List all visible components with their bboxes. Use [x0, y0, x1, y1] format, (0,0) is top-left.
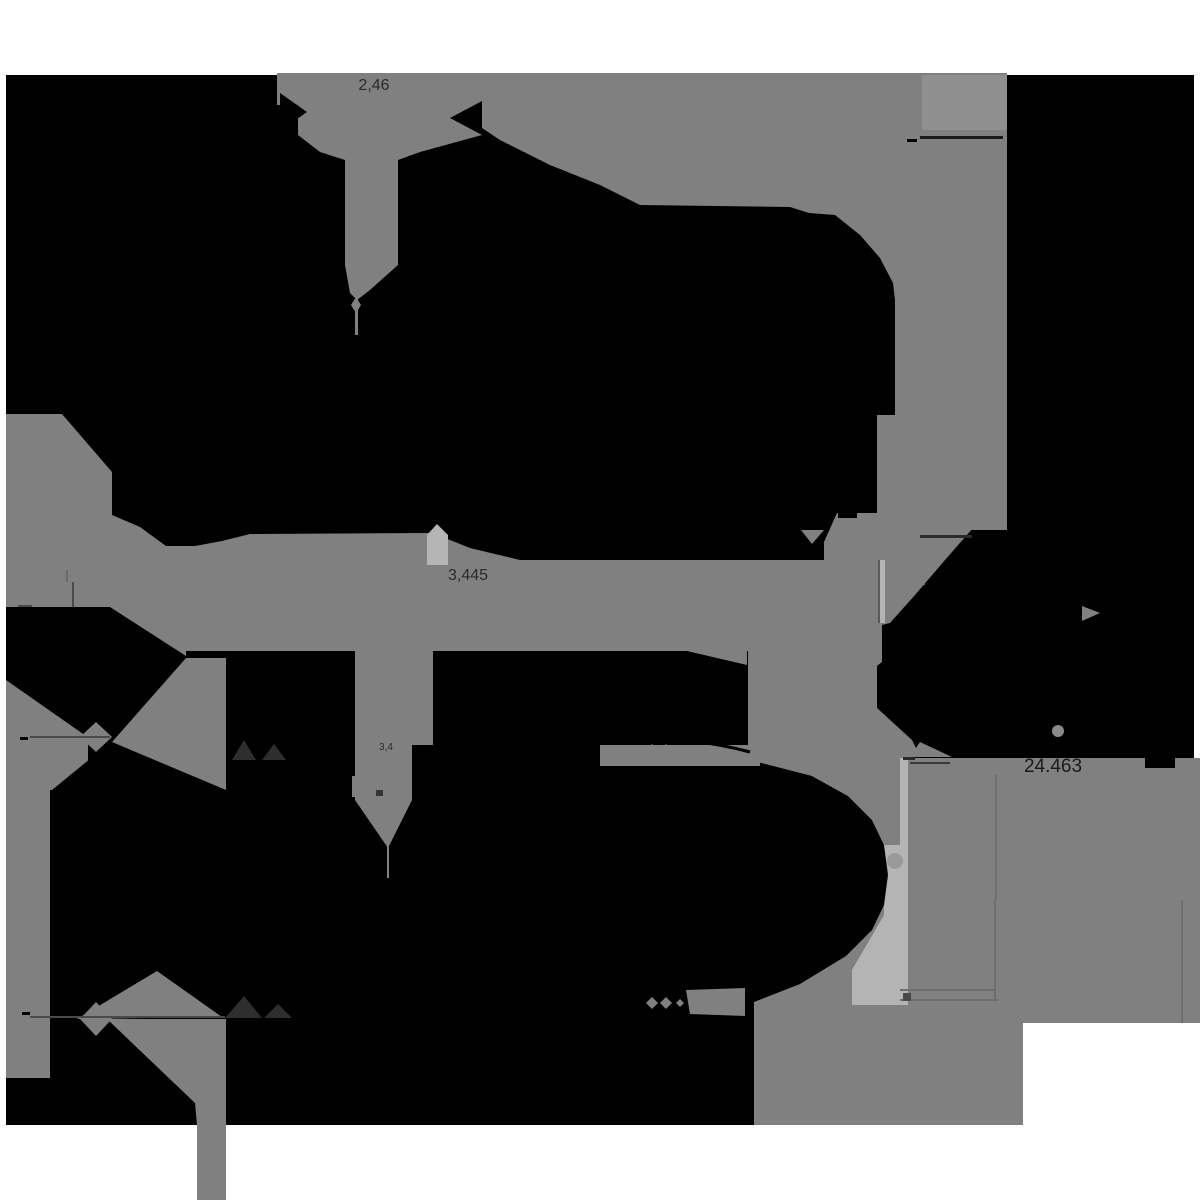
svg-text:3,4: 3,4	[379, 742, 393, 753]
svg-text:2,46: 2,46	[358, 77, 389, 94]
svg-text:24.463: 24.463	[1024, 756, 1082, 777]
svg-text:3,445: 3,445	[448, 567, 488, 584]
